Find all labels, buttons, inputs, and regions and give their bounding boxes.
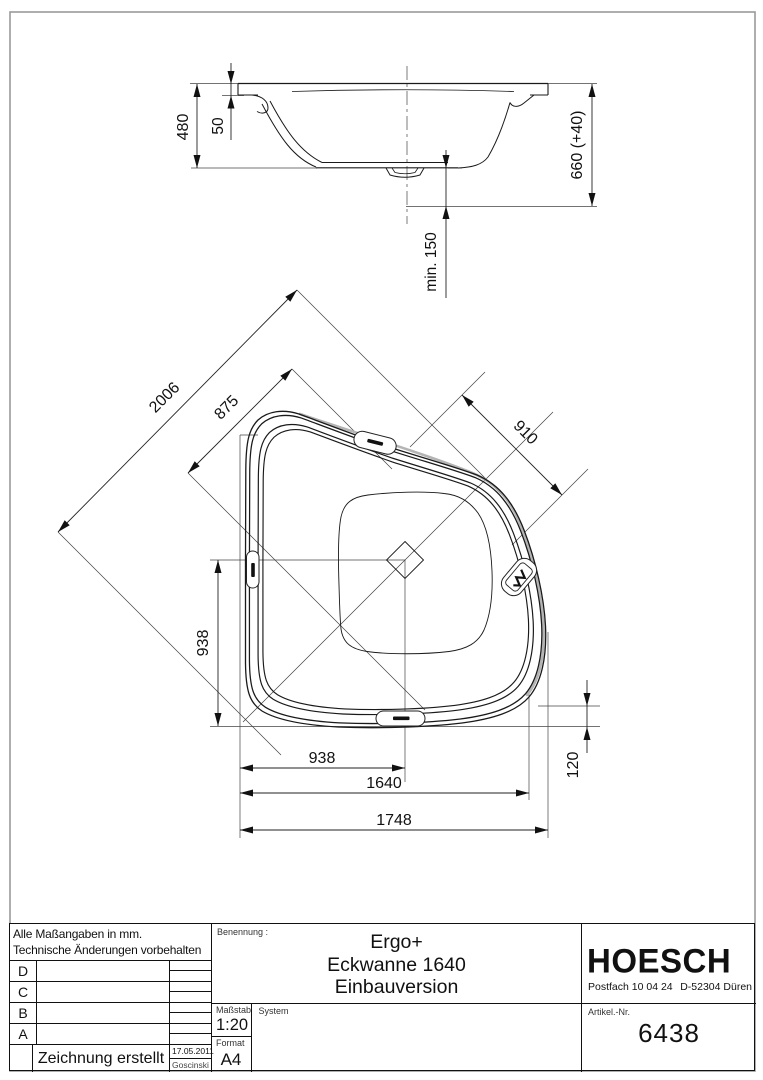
brand-address-right: D-52304 Düren	[680, 981, 752, 993]
created-date: 17.05.2011	[170, 1045, 212, 1059]
drawing-sheet: { "colors": { "line": "#1a1a1a", "frame"…	[0, 0, 763, 1080]
grip-left	[247, 551, 260, 588]
created-by: Goscinski	[170, 1059, 212, 1073]
dimension-lines	[58, 63, 592, 830]
construction-lines	[58, 84, 600, 839]
drain-section	[386, 168, 424, 177]
dim-label-50: 50	[210, 117, 227, 135]
note-line-2: Technische Änderungen vorbehalten	[13, 943, 211, 959]
footer-spacer	[10, 1045, 33, 1072]
technical-drawing: 480 50 660 (+40) min. 150 2006 875 910 9…	[0, 0, 763, 1080]
dim-label-1748: 1748	[376, 812, 412, 829]
revision-letter: D	[10, 961, 37, 981]
format-cell: Format A4	[212, 1037, 252, 1072]
revision-letter: B	[10, 1003, 37, 1023]
revision-letter: A	[10, 1024, 37, 1044]
side-view	[238, 84, 548, 178]
revision-row: D	[10, 961, 212, 982]
dim-label-910: 910	[510, 417, 541, 448]
dim-label-1640: 1640	[366, 775, 402, 792]
brand-logo: HOESCH	[582, 941, 756, 981]
format-label: Format	[216, 1038, 251, 1048]
system-cell: System	[252, 1004, 582, 1073]
revision-row: C	[10, 982, 212, 1003]
basin-floor-contour	[338, 492, 492, 654]
brand-cell: HOESCH Postfach 10 04 24 D-52304 Düren	[581, 924, 756, 1004]
revision-subcells	[170, 1003, 212, 1023]
grip-bottom	[376, 711, 425, 726]
brand-address-left: Postfach 10 04 24	[588, 981, 673, 993]
revision-empty-cell	[37, 1003, 170, 1023]
dim-label-120: 120	[565, 752, 582, 779]
dimension-labels: 480 50 660 (+40) min. 150 2006 875 910 9…	[146, 111, 586, 829]
dim-label-938-horizontal: 938	[309, 750, 336, 767]
note-line-1: Alle Maßangaben in mm.	[13, 927, 211, 943]
title-block: Alle Maßangaben in mm. Technische Änderu…	[9, 923, 755, 1071]
revision-row: B	[10, 1003, 212, 1024]
scale-label: Maßstab	[216, 1005, 251, 1015]
article-number: 6438	[582, 1018, 756, 1049]
revision-empty-cell	[37, 1024, 170, 1044]
designation-cell: Benennung : Ergo+ Eckwanne 1640 Einbauve…	[212, 924, 581, 1004]
notes-cell: Alle Maßangaben in mm. Technische Änderu…	[10, 924, 212, 961]
dim-label-min150: min. 150	[423, 232, 440, 292]
rim-shading-band	[300, 414, 544, 695]
article-label: Artikel.-Nr.	[588, 1007, 630, 1017]
dim-label-480: 480	[175, 114, 192, 141]
revision-empty-cell	[37, 982, 170, 1002]
revision-empty-cell	[37, 961, 170, 981]
left-wall-outer	[262, 104, 316, 167]
system-label: System	[259, 1006, 582, 1016]
scale-value: 1:20	[216, 1016, 251, 1035]
created-label: Zeichnung erstellt	[33, 1045, 170, 1072]
revision-letter: C	[10, 982, 37, 1002]
page-frame	[10, 12, 755, 1071]
article-cell: Artikel.-Nr. 6438	[581, 1004, 756, 1072]
dim-label-875: 875	[211, 392, 242, 423]
fittings	[247, 430, 541, 726]
format-value: A4	[216, 1050, 246, 1070]
dim-label-660: 660 (+40)	[569, 111, 586, 180]
designation-label: Benennung :	[217, 927, 268, 937]
product-title-line2: Eckwanne 1640	[212, 954, 581, 977]
revision-subcells	[170, 961, 212, 981]
revision-subcells	[170, 1024, 212, 1044]
right-wall	[458, 103, 510, 169]
revision-subcells	[170, 982, 212, 1002]
dimension-arrows	[58, 71, 596, 834]
dim-label-938-vertical: 938	[195, 630, 212, 657]
revision-row: A	[10, 1024, 212, 1045]
product-title-line3: Einbauversion	[212, 976, 581, 999]
footer-row: Zeichnung erstellt 17.05.2011 Goscinski	[10, 1045, 212, 1072]
scale-cell: Maßstab 1:20	[212, 1004, 252, 1038]
